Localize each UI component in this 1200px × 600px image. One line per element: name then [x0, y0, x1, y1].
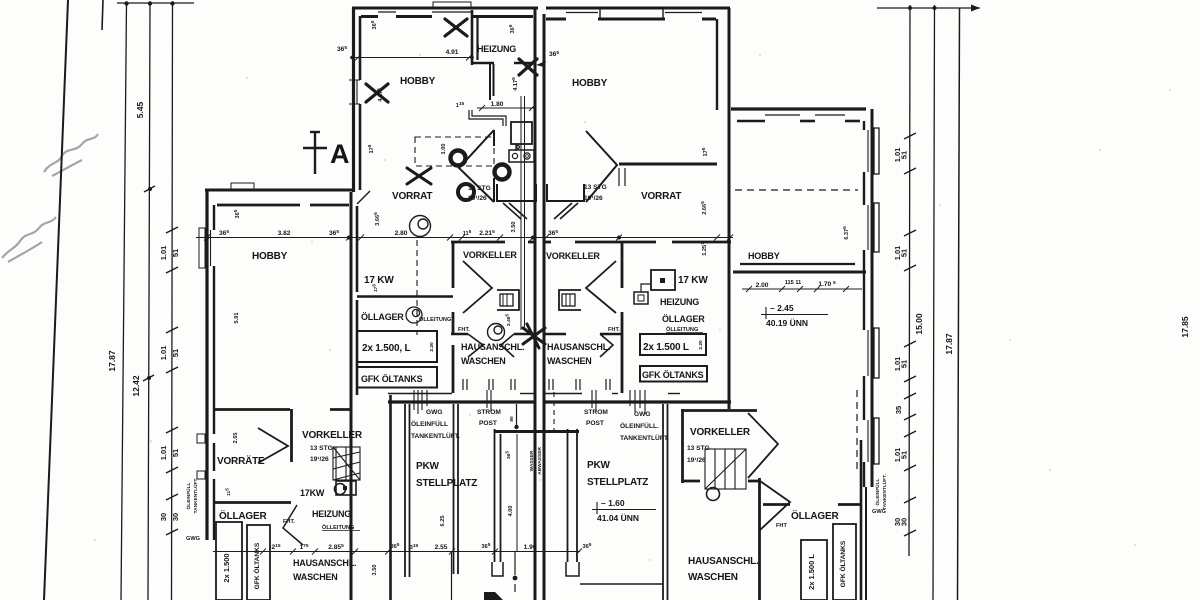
svg-text:19¹/26: 19¹/26 — [584, 195, 603, 202]
svg-text:VORKELLER: VORKELLER — [463, 250, 517, 260]
svg-text:WASSER: WASSER — [529, 450, 535, 471]
svg-text:ÖLLAGER: ÖLLAGER — [791, 509, 839, 522]
svg-text:ABWASSER: ABWASSER — [537, 447, 543, 475]
svg-text:GFK ÖLTANKS: GFK ÖLTANKS — [642, 370, 704, 380]
svg-text:STELLPLATZ: STELLPLATZ — [587, 477, 648, 488]
svg-text:GWG: GWG — [634, 411, 650, 418]
svg-text:STELLPLATZ: STELLPLATZ — [416, 478, 477, 489]
svg-text:VORKELLER: VORKELLER — [302, 430, 363, 441]
svg-text:3.82: 3.82 — [278, 230, 291, 237]
svg-text:PKW: PKW — [587, 460, 610, 471]
svg-text:VORKELLER: VORKELLER — [690, 427, 751, 438]
svg-text:HAUSANSCHL.: HAUSANSCHL. — [547, 342, 610, 352]
svg-text:GFK ÖLTANKS: GFK ÖLTANKS — [361, 374, 423, 384]
svg-text:1.01: 1.01 — [159, 346, 168, 361]
svg-text:17 KW: 17 KW — [364, 275, 394, 286]
svg-text:FHT.: FHT. — [458, 327, 470, 333]
svg-text:41.04 ÜNN: 41.04 ÜNN — [597, 513, 639, 523]
svg-text:30: 30 — [159, 513, 168, 521]
svg-text:GFK ÖLTANKS: GFK ÖLTANKS — [252, 542, 261, 589]
svg-text:HEIZUNG: HEIZUNG — [477, 44, 516, 54]
svg-text:FHT: FHT — [776, 523, 787, 529]
svg-text:WASCHEN: WASCHEN — [547, 356, 592, 366]
svg-text:STROM: STROM — [477, 409, 501, 416]
svg-text:51: 51 — [171, 349, 180, 357]
svg-text:GFK ÖLTANKS: GFK ÖLTANKS — [838, 540, 847, 587]
svg-text:HEIZUNG: HEIZUNG — [660, 297, 699, 307]
svg-text:TANKENTLÜFT.: TANKENTLÜFT. — [411, 431, 460, 440]
svg-text:VORRÄTE: VORRÄTE — [217, 454, 265, 467]
svg-text:19¹/26: 19¹/26 — [468, 195, 487, 202]
svg-text:13 STG: 13 STG — [310, 445, 333, 452]
svg-text:WASCHEN: WASCHEN — [461, 356, 506, 366]
svg-text:80: 80 — [509, 416, 515, 422]
svg-text:30: 30 — [171, 513, 180, 521]
svg-text:3.50: 3.50 — [372, 565, 378, 576]
svg-text:– 2.45: – 2.45 — [770, 303, 794, 313]
svg-text:POST: POST — [479, 420, 497, 427]
svg-text:2x 1.500, L: 2x 1.500, L — [362, 343, 410, 354]
svg-text:HAUSANSCHL.: HAUSANSCHL. — [293, 558, 356, 568]
svg-text:ÖLLEITUNG: ÖLLEITUNG — [419, 316, 451, 323]
svg-text:HAUSANSCHL.: HAUSANSCHL. — [461, 342, 524, 352]
svg-text:3.50: 3.50 — [511, 222, 517, 233]
svg-text:VORRAT: VORRAT — [392, 191, 432, 202]
svg-text:HEIZUNG: HEIZUNG — [312, 509, 351, 519]
svg-text:HOBBY: HOBBY — [572, 78, 608, 89]
svg-text:– 1.60: – 1.60 — [601, 498, 625, 508]
svg-text:2.55: 2.55 — [435, 544, 448, 551]
svg-text:2x 1.500 L: 2x 1.500 L — [807, 554, 816, 590]
svg-text:13 STG: 13 STG — [468, 185, 491, 192]
svg-text:40.19 ÜNN: 40.19 ÜNN — [766, 318, 808, 328]
svg-text:1.00: 1.00 — [441, 144, 447, 155]
svg-text:VORRAT: VORRAT — [641, 191, 681, 202]
svg-text:51: 51 — [900, 151, 909, 159]
svg-text:15.00: 15.00 — [914, 313, 924, 335]
svg-text:ÖLLAGER: ÖLLAGER — [361, 312, 404, 322]
svg-text:1.80: 1.80 — [491, 101, 504, 108]
svg-text:ÖLLAGER: ÖLLAGER — [219, 509, 267, 522]
svg-text:17.85: 17.85 — [1180, 316, 1190, 338]
svg-text:51: 51 — [900, 451, 909, 459]
svg-text:2x 1.500: 2x 1.500 — [222, 553, 231, 582]
svg-text:HAUSANSCHL.: HAUSANSCHL. — [688, 556, 759, 567]
svg-text:1.01: 1.01 — [159, 446, 168, 461]
svg-text:ÖLEINFÜLL: ÖLEINFÜLL — [411, 419, 448, 428]
svg-text:51: 51 — [171, 449, 180, 457]
svg-text:115 11: 115 11 — [785, 280, 802, 286]
svg-text:17KW: 17KW — [300, 488, 325, 498]
svg-text:HOBBY: HOBBY — [748, 251, 780, 261]
svg-text:FHT.: FHT. — [608, 327, 620, 333]
svg-text:PKW: PKW — [416, 461, 439, 472]
svg-text:19¹/26: 19¹/26 — [687, 457, 706, 464]
svg-text:51: 51 — [171, 249, 180, 257]
svg-text:ÖLEINFÜLL.: ÖLEINFÜLL. — [620, 421, 659, 430]
svg-text:POST: POST — [586, 420, 604, 427]
svg-text:17.87: 17.87 — [944, 333, 954, 355]
svg-text:6.25: 6.25 — [440, 516, 446, 527]
svg-text:TANKENTLÜFT: TANKENTLÜFT — [192, 479, 199, 514]
svg-text:5.45: 5.45 — [135, 101, 145, 118]
svg-text:A: A — [330, 139, 350, 169]
svg-text:2.80: 2.80 — [395, 230, 408, 237]
svg-text:13 STG: 13 STG — [584, 184, 607, 191]
svg-text:35: 35 — [894, 406, 903, 414]
svg-text:ÖLEINFÜLL: ÖLEINFÜLL — [874, 478, 881, 505]
svg-text:GWG: GWG — [872, 509, 886, 515]
svg-text:GWG: GWG — [426, 409, 442, 416]
svg-text:2.20: 2.20 — [429, 342, 435, 352]
svg-text:ÖLEINFÜLL: ÖLEINFÜLL — [185, 482, 192, 509]
svg-text:17.87: 17.87 — [107, 350, 117, 372]
svg-text:WASCHEN: WASCHEN — [293, 572, 338, 582]
svg-text:ÖLLEITUNG: ÖLLEITUNG — [666, 326, 698, 333]
svg-text:2.00: 2.00 — [756, 282, 769, 289]
svg-text:2x 1.500 L: 2x 1.500 L — [643, 342, 689, 353]
svg-text:WASCHEN: WASCHEN — [688, 572, 738, 583]
svg-text:2.20: 2.20 — [698, 340, 704, 350]
svg-text:51: 51 — [900, 360, 909, 368]
svg-text:5.91: 5.91 — [234, 313, 240, 324]
svg-text:HOBBY: HOBBY — [400, 76, 436, 87]
svg-text:19¹/26: 19¹/26 — [310, 456, 329, 463]
svg-text:STROM: STROM — [584, 409, 608, 416]
svg-text:1.90: 1.90 — [524, 544, 537, 551]
svg-text:30: 30 — [900, 518, 909, 526]
svg-text:4.00: 4.00 — [508, 506, 514, 517]
svg-text:ÖLLAGER: ÖLLAGER — [662, 314, 705, 324]
svg-text:2.65: 2.65 — [233, 433, 239, 444]
svg-text:51: 51 — [900, 249, 909, 257]
svg-text:TANKENTLÜFT.: TANKENTLÜFT. — [881, 474, 888, 510]
svg-text:ÖLLEITUNG: ÖLLEITUNG — [322, 524, 354, 531]
svg-text:4.91: 4.91 — [446, 49, 459, 56]
svg-text:1.01: 1.01 — [159, 246, 168, 261]
svg-text:TANKENTLÜFT.: TANKENTLÜFT. — [620, 433, 669, 442]
svg-text:VORKELLER: VORKELLER — [546, 251, 600, 261]
svg-text:HOBBY: HOBBY — [252, 251, 288, 262]
svg-text:17 KW: 17 KW — [678, 275, 708, 286]
svg-text:12.42: 12.42 — [131, 375, 141, 397]
svg-text:GWG: GWG — [186, 536, 200, 542]
